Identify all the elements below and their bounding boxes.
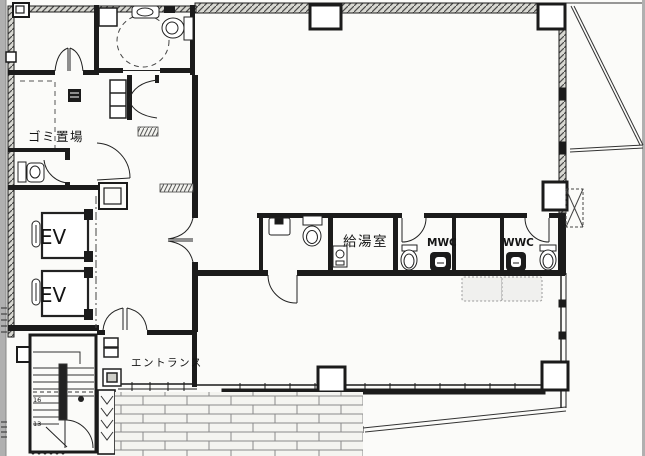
counter	[462, 277, 502, 301]
brick-walkway	[115, 392, 363, 456]
shelf-icon	[110, 80, 126, 118]
floorplan-svg: ゴミ置場 EV EV エントランス 給湯室 MWC WWC 16 13	[0, 0, 645, 456]
stair-number-upper: 16	[33, 396, 41, 404]
mat-hatch	[160, 184, 193, 192]
mens-wc-label: MWC	[427, 237, 457, 249]
elevator-2-label: EV	[40, 283, 67, 307]
kitchenette-label: 給湯室	[343, 233, 388, 250]
mat-hatch	[138, 127, 158, 136]
toilet-icon	[18, 162, 44, 182]
counter	[502, 277, 542, 301]
toilet-icon	[401, 245, 417, 270]
garbage-room-label: ゴミ置場	[28, 129, 84, 144]
urinal-icon	[506, 252, 526, 271]
sink-icon	[269, 218, 290, 235]
toilet-icon	[162, 17, 193, 40]
stair-number-lower: 13	[33, 420, 41, 428]
elevator-1-label: EV	[40, 225, 67, 249]
toilet-icon	[303, 216, 322, 246]
urinal-icon	[430, 252, 451, 271]
toilet-icon	[540, 245, 556, 270]
entrance-label: エントランス	[131, 357, 203, 369]
womens-wc-label: WWC	[503, 237, 534, 249]
floor-drain-icon	[68, 89, 81, 102]
stair-divider	[59, 364, 67, 420]
floorplan-image: ゴミ置場 EV EV エントランス 給湯室 MWC WWC 16 13	[0, 0, 645, 456]
